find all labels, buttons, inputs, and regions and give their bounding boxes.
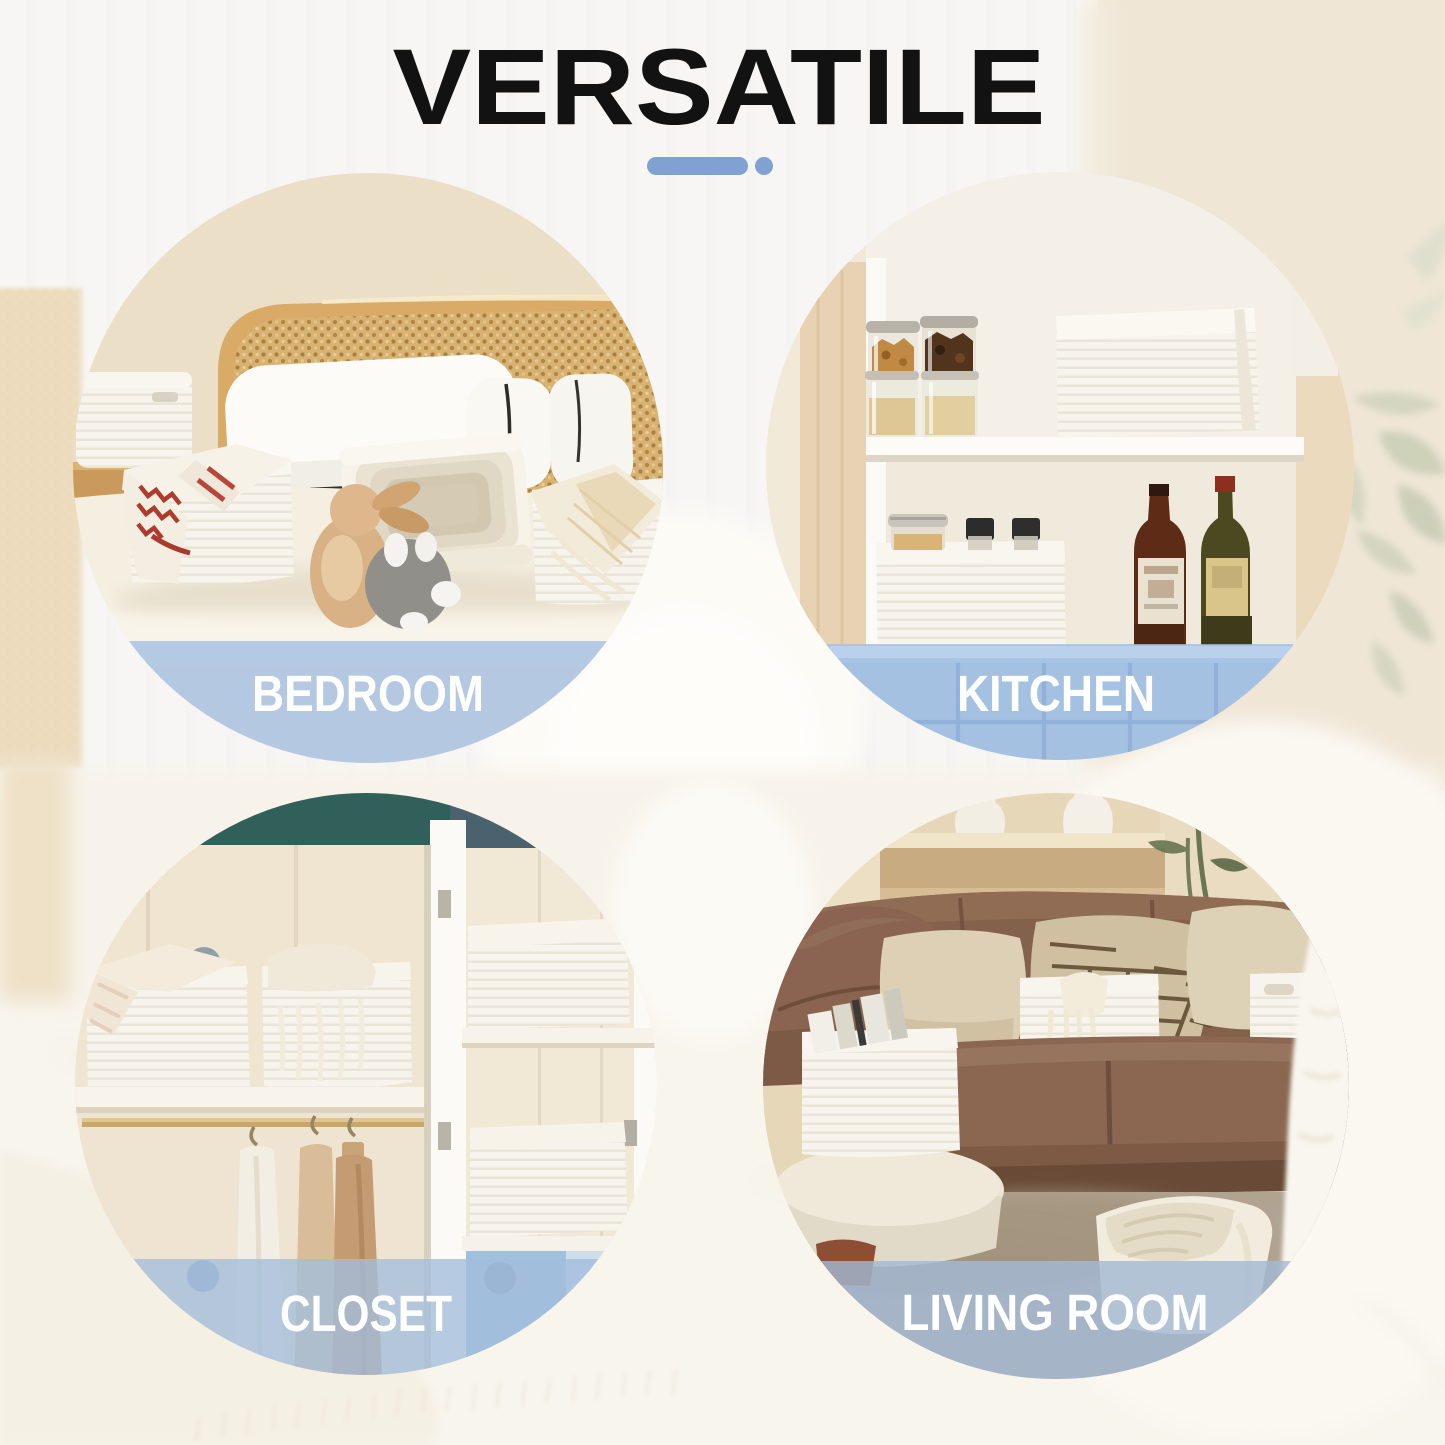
svg-text:KITCHEN: KITCHEN — [957, 665, 1155, 722]
svg-text:VERSATILE: VERSATILE — [393, 26, 1046, 147]
svg-text:LIVING ROOM: LIVING ROOM — [902, 1284, 1209, 1341]
svg-text:BEDROOM: BEDROOM — [252, 665, 484, 722]
svg-text:CLOSET: CLOSET — [280, 1285, 452, 1342]
